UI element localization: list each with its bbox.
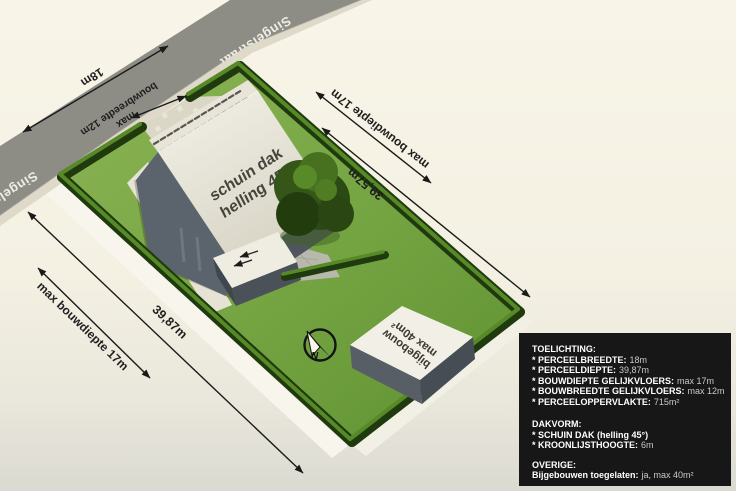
legend-row: * PERCEELOPPERVLAKTE:715m² xyxy=(532,397,723,408)
legend-section-title: DAKVORM: xyxy=(532,419,723,430)
legend-value: max 12m xyxy=(688,386,725,396)
legend-label: * SCHUIN DAK (helling 45°) xyxy=(532,430,648,440)
legend-label: * BOUWBREEDTE GELIJKVLOERS: xyxy=(532,386,685,396)
legend-value: max 17m xyxy=(677,376,714,386)
legend-label: * BOUWDIEPTE GELIJKVLOERS: xyxy=(532,376,674,386)
legend-row: * BOUWBREEDTE GELIJKVLOERS:max 12m xyxy=(532,386,723,397)
legend-value: 39,87m xyxy=(619,365,649,375)
legend-row: Bijgebouwen toegelaten:ja, max 40m² xyxy=(532,470,723,481)
legend-value: 715m² xyxy=(654,397,680,407)
compass-north-label: N xyxy=(311,351,319,362)
legend-row: * BOUWDIEPTE GELIJKVLOERS:max 17m xyxy=(532,376,723,387)
legend-row: * KROONLIJSTHOOGTE:6m xyxy=(532,440,723,451)
legend-value: ja, max 40m² xyxy=(642,470,694,480)
legend-label: Bijgebouwen toegelaten: xyxy=(532,470,639,480)
legend-row: * PERCEELBREEDTE:18m xyxy=(532,355,723,366)
label-builddepth-left: max bouwdiepte 17m xyxy=(34,279,131,373)
legend-row: * SCHUIN DAK (helling 45°) xyxy=(532,430,723,441)
legend-section-title: TOELICHTING: xyxy=(532,344,723,355)
legend-row: * PERCEELDIEPTE:39,87m xyxy=(532,365,723,376)
dimension-arrow-builddepth-left-17m xyxy=(38,268,150,378)
builddepth-left-text: max bouwdiepte 17m xyxy=(34,279,131,373)
legend-label: * PERCEELBREEDTE: xyxy=(532,355,627,365)
legend-value: 18m xyxy=(630,355,648,365)
legend-panel: TOELICHTING: * PERCEELBREEDTE:18m * PERC… xyxy=(519,333,731,486)
legend-label: * KROONLIJSTHOOGTE: xyxy=(532,440,638,450)
legend-label: * PERCEELOPPERVLAKTE: xyxy=(532,397,651,407)
legend-label: * PERCEELDIEPTE: xyxy=(532,365,616,375)
legend-section-title: OVERIGE: xyxy=(532,460,723,471)
site-plan-stage: Singelstraat Singelstraat xyxy=(0,0,736,491)
legend-value: 6m xyxy=(641,440,654,450)
